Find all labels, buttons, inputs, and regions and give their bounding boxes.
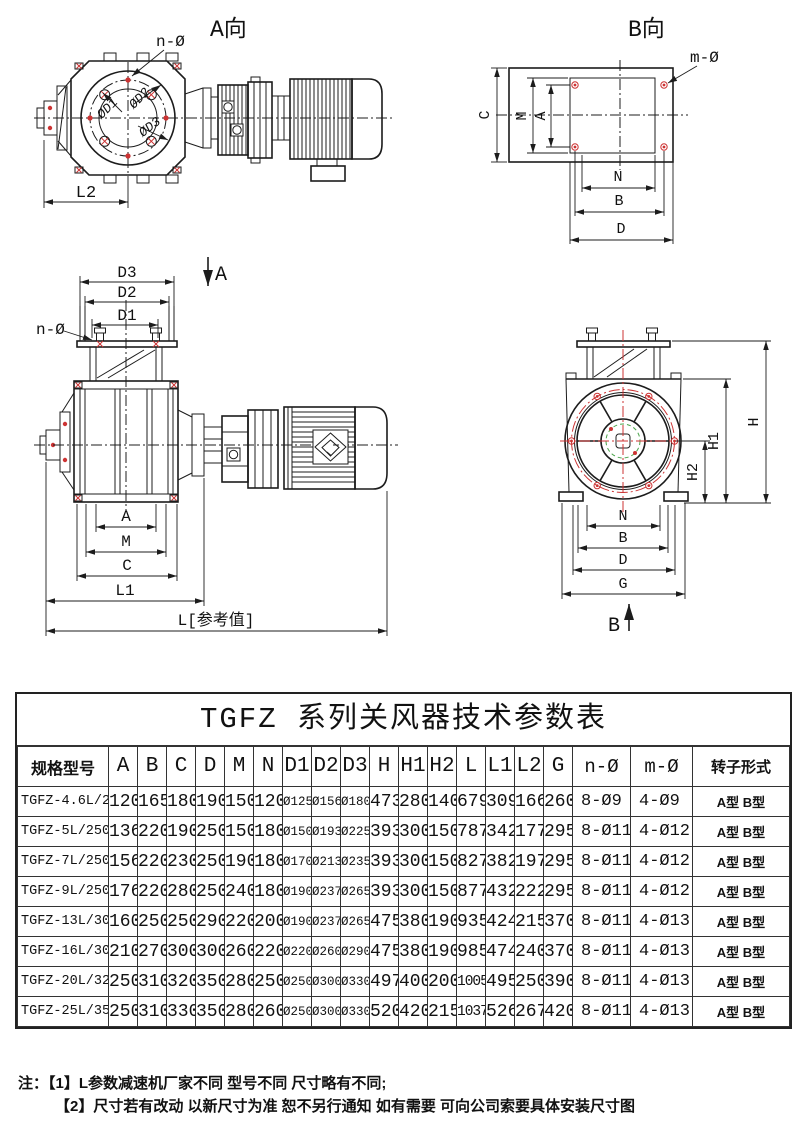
table-row: TGFZ-7L/250156220230250190180Ø170Ø213Ø23… — [18, 847, 790, 877]
dim-label-d3: D3 — [117, 264, 136, 282]
value-cell: Ø265 — [341, 907, 370, 937]
dim-label-b: B — [614, 193, 623, 210]
value-cell: 370 — [544, 907, 573, 937]
column-header: C — [167, 747, 196, 787]
value-cell: A型 B型 — [693, 877, 790, 907]
front-view-drawing: A D3 D2 D1 n-Ø — [34, 257, 398, 636]
value-cell: 260 — [225, 937, 254, 967]
flange-hole-icon — [646, 482, 652, 488]
dim-label-l: L[参考值] — [178, 611, 255, 630]
column-header: H1 — [399, 747, 428, 787]
dim-label-a: A — [533, 111, 550, 120]
value-cell: 432 — [486, 877, 515, 907]
dim-label-c: C — [477, 110, 494, 119]
dim-label-h2: H2 — [685, 463, 702, 481]
value-cell: 177 — [515, 817, 544, 847]
column-header: L — [457, 747, 486, 787]
header-row: 规格型号ABCDMND1D2D3HH1H2LL1L2Gn-Øm-Ø转子形式 — [18, 747, 790, 787]
value-cell: A型 B型 — [693, 967, 790, 997]
value-cell: 267 — [515, 997, 544, 1027]
note-prefix: 注： — [18, 1075, 48, 1092]
value-cell: 150 — [428, 847, 457, 877]
note-line-1: 注：【1】L参数减速机厂家不同 型号不同 尺寸略有不同; — [18, 1072, 635, 1095]
dim-label-h: H — [746, 417, 763, 426]
value-cell: 197 — [515, 847, 544, 877]
flange-hole-icon — [572, 82, 578, 88]
value-cell: 380 — [399, 907, 428, 937]
value-cell: 424 — [486, 907, 515, 937]
table-title: TGFZ 系列关风器技术参数表 — [17, 694, 790, 746]
value-cell: Ø150 — [283, 817, 312, 847]
flange-bolt-icon — [587, 328, 598, 341]
value-cell: 222 — [515, 877, 544, 907]
model-cell: TGFZ-16L/300 — [18, 937, 109, 967]
value-cell: 475 — [370, 937, 399, 967]
value-cell: 787 — [457, 817, 486, 847]
value-cell: 526 — [486, 997, 515, 1027]
value-cell: A型 B型 — [693, 847, 790, 877]
column-header: H2 — [428, 747, 457, 787]
value-cell: 393 — [370, 817, 399, 847]
value-cell: 300 — [167, 937, 196, 967]
flange-bolt-icon — [151, 328, 162, 341]
dim-label-n: N — [618, 508, 627, 525]
value-cell: Ø330 — [341, 997, 370, 1027]
note-text-1: 【1】L参数减速机厂家不同 型号不同 尺寸略有不同; — [48, 1075, 386, 1092]
value-cell: Ø260 — [312, 937, 341, 967]
value-cell: 4-Ø13 — [631, 907, 693, 937]
value-cell: 180 — [254, 877, 283, 907]
value-cell: 280 — [225, 967, 254, 997]
value-cell: Ø235 — [341, 847, 370, 877]
value-cell: 136 — [109, 817, 138, 847]
value-cell: 393 — [370, 847, 399, 877]
table-row: TGFZ-25L/350250310330350280260Ø250Ø300Ø3… — [18, 997, 790, 1027]
value-cell: 497 — [370, 967, 399, 997]
value-cell: Ø125 — [283, 787, 312, 817]
value-cell: 310 — [138, 997, 167, 1027]
model-cell: TGFZ-25L/350 — [18, 997, 109, 1027]
value-cell: 4-Ø12 — [631, 847, 693, 877]
value-cell: Ø190 — [283, 907, 312, 937]
value-cell: 679 — [457, 787, 486, 817]
value-cell: Ø237 — [312, 877, 341, 907]
section-mark-b: B — [608, 615, 620, 638]
value-cell: 390 — [544, 967, 573, 997]
corner-bolt-icon — [170, 382, 178, 388]
value-cell: 150 — [428, 817, 457, 847]
column-header: N — [254, 747, 283, 787]
value-cell: 190 — [428, 907, 457, 937]
value-cell: 250 — [196, 817, 225, 847]
flange-bolt-icon — [647, 328, 658, 341]
value-cell: Ø265 — [341, 877, 370, 907]
value-cell: 985 — [457, 937, 486, 967]
value-cell: 400 — [399, 967, 428, 997]
table-row: TGFZ-5L/250136220190250150180Ø150Ø193Ø22… — [18, 817, 790, 847]
value-cell: 310 — [138, 967, 167, 997]
hole-callout-label: m-Ø — [690, 49, 719, 67]
value-cell: 176 — [109, 877, 138, 907]
value-cell: 190 — [167, 817, 196, 847]
dim-label-m: M — [121, 533, 131, 551]
dim-label-d: D — [616, 221, 625, 238]
flange-hole-icon — [572, 144, 578, 150]
value-cell: 382 — [486, 847, 515, 877]
value-cell: 4-Ø13 — [631, 967, 693, 997]
flange-hole-icon — [646, 393, 652, 399]
dim-label-n: N — [613, 169, 622, 186]
technical-drawings: A向 ØD1 ØD2 ØD3 — [0, 0, 800, 690]
value-cell: 240 — [515, 937, 544, 967]
value-cell: 150 — [428, 877, 457, 907]
column-header: H — [370, 747, 399, 787]
value-cell: 330 — [167, 997, 196, 1027]
section-mark-a: A — [215, 264, 227, 287]
value-cell: 190 — [225, 847, 254, 877]
value-cell: Ø330 — [341, 967, 370, 997]
value-cell: 215 — [515, 907, 544, 937]
column-header: m-Ø — [631, 747, 693, 787]
value-cell: 290 — [196, 907, 225, 937]
value-cell: 166 — [515, 787, 544, 817]
end-view-drawing: H2 H1 H N B D G B — [559, 328, 771, 638]
value-cell: 350 — [196, 967, 225, 997]
dim-label-l1: L1 — [115, 582, 134, 600]
value-cell: 250 — [515, 967, 544, 997]
value-cell: 180 — [254, 847, 283, 877]
value-cell: 8-Ø9 — [573, 787, 631, 817]
column-header: D2 — [312, 747, 341, 787]
value-cell: 120 — [109, 787, 138, 817]
motor-logo — [313, 430, 348, 464]
value-cell: 240 — [225, 877, 254, 907]
value-cell: Ø213 — [312, 847, 341, 877]
value-cell: 140 — [428, 787, 457, 817]
value-cell: 473 — [370, 787, 399, 817]
spec-table: TGFZ 系列关风器技术参数表 规格型号ABCDMND1D2D3HH1H2LL1… — [15, 692, 792, 1029]
dim-label-m: M — [514, 111, 531, 120]
value-cell: 475 — [370, 907, 399, 937]
value-cell: 935 — [457, 907, 486, 937]
value-cell: 8-Ø11 — [573, 877, 631, 907]
value-cell: 230 — [167, 847, 196, 877]
dim-label-a: A — [121, 508, 131, 526]
value-cell: 220 — [225, 907, 254, 937]
value-cell: 8-Ø11 — [573, 847, 631, 877]
value-cell: 8-Ø11 — [573, 997, 631, 1027]
value-cell: 295 — [544, 877, 573, 907]
value-cell: 295 — [544, 817, 573, 847]
spec-table-grid: 规格型号ABCDMND1D2D3HH1H2LL1L2Gn-Øm-Ø转子形式 TG… — [17, 746, 790, 1027]
value-cell: Ø220 — [283, 937, 312, 967]
value-cell: 300 — [399, 817, 428, 847]
dim-label-b: B — [618, 530, 627, 547]
flange-hole-icon — [661, 144, 667, 150]
value-cell: 250 — [254, 967, 283, 997]
value-cell: 380 — [399, 937, 428, 967]
note-text-2: 【2】尺寸若有改动 以新尺寸为准 恕不另行通知 如有需要 可向公司索要具体安装尺… — [55, 1098, 635, 1115]
corner-bolt-icon — [74, 495, 82, 501]
value-cell: 160 — [109, 907, 138, 937]
value-cell: 165 — [138, 787, 167, 817]
value-cell: 393 — [370, 877, 399, 907]
value-cell: 420 — [544, 997, 573, 1027]
value-cell: Ø250 — [283, 967, 312, 997]
column-header: M — [225, 747, 254, 787]
value-cell: Ø300 — [312, 997, 341, 1027]
value-cell: 250 — [196, 877, 225, 907]
value-cell: 220 — [254, 937, 283, 967]
value-cell: Ø290 — [341, 937, 370, 967]
value-cell: 8-Ø11 — [573, 937, 631, 967]
value-cell: Ø190 — [283, 877, 312, 907]
corner-bolt-icon — [170, 495, 178, 501]
dim-label-d1: D1 — [117, 307, 136, 325]
dim-label-g: G — [618, 576, 627, 593]
column-header: n-Ø — [573, 747, 631, 787]
model-cell: TGFZ-9L/250 — [18, 877, 109, 907]
value-cell: 250 — [196, 847, 225, 877]
value-cell: 420 — [399, 997, 428, 1027]
dim-label-d: D — [618, 552, 627, 569]
value-cell: 300 — [196, 937, 225, 967]
value-cell: 309 — [486, 787, 515, 817]
view-b-title: B向 — [628, 16, 665, 43]
value-cell: 474 — [486, 937, 515, 967]
corner-bolt-icon — [74, 382, 82, 388]
value-cell: 520 — [370, 997, 399, 1027]
column-header: D — [196, 747, 225, 787]
value-cell: 180 — [254, 817, 283, 847]
column-header: D3 — [341, 747, 370, 787]
value-cell: 4-Ø9 — [631, 787, 693, 817]
value-cell: 210 — [109, 937, 138, 967]
value-cell: 8-Ø11 — [573, 817, 631, 847]
dim-label-c: C — [122, 557, 132, 575]
value-cell: 220 — [138, 817, 167, 847]
dia-label-d1: ØD1 — [93, 95, 121, 123]
view-a-drawing: A向 ØD1 ØD2 ØD3 — [34, 16, 392, 208]
value-cell: A型 B型 — [693, 937, 790, 967]
value-cell: 150 — [225, 817, 254, 847]
value-cell: 215 — [428, 997, 457, 1027]
value-cell: Ø300 — [312, 967, 341, 997]
value-cell: 300 — [399, 847, 428, 877]
value-cell: 250 — [138, 907, 167, 937]
table-row: TGFZ-20L/320250310320350280250Ø250Ø300Ø3… — [18, 967, 790, 997]
value-cell: 300 — [399, 877, 428, 907]
value-cell: Ø170 — [283, 847, 312, 877]
value-cell: 370 — [544, 937, 573, 967]
value-cell: 156 — [109, 847, 138, 877]
value-cell: Ø180 — [341, 787, 370, 817]
flange-hole-icon — [594, 393, 600, 399]
value-cell: 4-Ø13 — [631, 997, 693, 1027]
dim-label-h1: H1 — [706, 432, 723, 450]
column-header: 转子形式 — [693, 747, 790, 787]
value-cell: 877 — [457, 877, 486, 907]
notes: 注：【1】L参数减速机厂家不同 型号不同 尺寸略有不同; 【2】尺寸若有改动 以… — [18, 1072, 635, 1118]
value-cell: Ø250 — [283, 997, 312, 1027]
value-cell: 4-Ø12 — [631, 817, 693, 847]
column-header: D1 — [283, 747, 312, 787]
value-cell: 295 — [544, 847, 573, 877]
view-a-title: A向 — [210, 16, 247, 43]
model-cell: TGFZ-4.6L/210 — [18, 787, 109, 817]
flange-hole-icon — [661, 82, 667, 88]
column-header: B — [138, 747, 167, 787]
value-cell: Ø225 — [341, 817, 370, 847]
value-cell: 190 — [196, 787, 225, 817]
value-cell: A型 B型 — [693, 907, 790, 937]
dim-label-d2: D2 — [117, 284, 136, 302]
corner-bolt-icon — [75, 167, 83, 173]
column-header: A — [109, 747, 138, 787]
value-cell: 8-Ø11 — [573, 967, 631, 997]
value-cell: 190 — [428, 937, 457, 967]
value-cell: 250 — [167, 907, 196, 937]
value-cell: 220 — [138, 847, 167, 877]
corner-bolt-icon — [75, 63, 83, 69]
value-cell: 495 — [486, 967, 515, 997]
value-cell: 320 — [167, 967, 196, 997]
value-cell: 280 — [167, 877, 196, 907]
value-cell: 280 — [225, 997, 254, 1027]
value-cell: 200 — [254, 907, 283, 937]
value-cell: 200 — [428, 967, 457, 997]
hole-callout-label: n-Ø — [156, 33, 185, 51]
value-cell: 1005 — [457, 967, 486, 997]
table-row: TGFZ-16L/300210270300300260220Ø220Ø260Ø2… — [18, 937, 790, 967]
value-cell: 350 — [196, 997, 225, 1027]
value-cell: 4-Ø13 — [631, 937, 693, 967]
value-cell: 220 — [138, 877, 167, 907]
table-row: TGFZ-9L/250176220280250240180Ø190Ø237Ø26… — [18, 877, 790, 907]
column-header: L1 — [486, 747, 515, 787]
value-cell: 342 — [486, 817, 515, 847]
value-cell: 260 — [254, 997, 283, 1027]
value-cell: A型 B型 — [693, 817, 790, 847]
value-cell: Ø156 — [312, 787, 341, 817]
value-cell: 270 — [138, 937, 167, 967]
corner-bolt-icon — [173, 63, 181, 69]
table-row: TGFZ-4.6L/210120165180190150120Ø125Ø156Ø… — [18, 787, 790, 817]
corner-bolt-icon — [173, 167, 181, 173]
value-cell: A型 B型 — [693, 787, 790, 817]
value-cell: 280 — [399, 787, 428, 817]
value-cell: 260 — [544, 787, 573, 817]
value-cell: 180 — [167, 787, 196, 817]
value-cell: 250 — [109, 967, 138, 997]
dim-label-l2: L2 — [76, 184, 96, 203]
column-header: G — [544, 747, 573, 787]
value-cell: A型 B型 — [693, 997, 790, 1027]
value-cell: 250 — [109, 997, 138, 1027]
column-header: 规格型号 — [18, 747, 109, 787]
value-cell: Ø193 — [312, 817, 341, 847]
note-line-2: 【2】尺寸若有改动 以新尺寸为准 恕不另行通知 如有需要 可向公司索要具体安装尺… — [55, 1095, 635, 1118]
flange-bolt-icon — [95, 328, 106, 341]
value-cell: 827 — [457, 847, 486, 877]
view-b-drawing: B向 m-Ø C M A N B — [477, 16, 719, 244]
table-row: TGFZ-13L/300160250250290220200Ø190Ø237Ø2… — [18, 907, 790, 937]
model-cell: TGFZ-7L/250 — [18, 847, 109, 877]
value-cell: 120 — [254, 787, 283, 817]
value-cell: 8-Ø11 — [573, 907, 631, 937]
hole-callout-label: n-Ø — [36, 321, 65, 339]
value-cell: 150 — [225, 787, 254, 817]
value-cell: Ø237 — [312, 907, 341, 937]
column-header: L2 — [515, 747, 544, 787]
flange-hole-icon — [594, 482, 600, 488]
drawing-sheet: A向 ØD1 ØD2 ØD3 — [0, 0, 800, 1145]
value-cell: 4-Ø12 — [631, 877, 693, 907]
value-cell: 1037 — [457, 997, 486, 1027]
model-cell: TGFZ-5L/250 — [18, 817, 109, 847]
flange-bolt-icon — [100, 136, 110, 146]
model-cell: TGFZ-20L/320 — [18, 967, 109, 997]
model-cell: TGFZ-13L/300 — [18, 907, 109, 937]
